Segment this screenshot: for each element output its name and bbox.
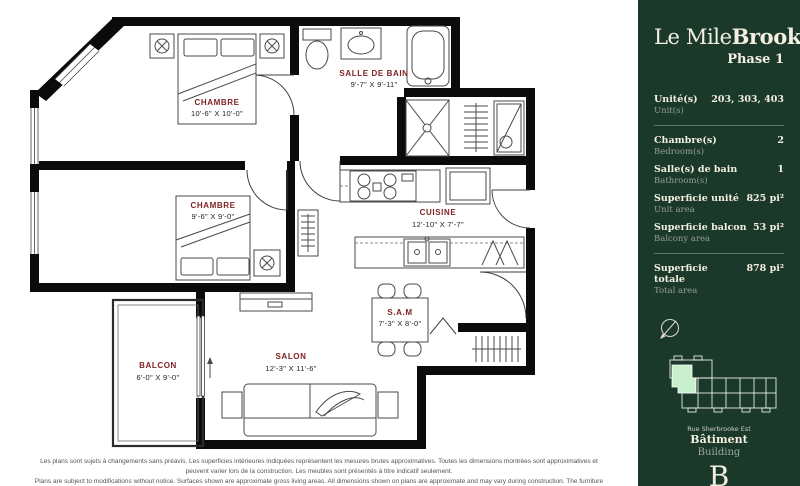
brand: Le MileBrook Phase 1 (654, 24, 784, 67)
bathtub-icon (407, 26, 449, 86)
stat-units-label-en: Unit(s) (654, 106, 698, 116)
building-block: Bâtiment Building B (654, 433, 784, 486)
floor-plan: CHAMBRE 10'-6" X 10'-0" SALLE DE BAIN 9'… (0, 0, 638, 455)
stat-bedrooms: Chambre(s) Bedroom(s) 2 (654, 135, 784, 157)
building-label-fr: Bâtiment (654, 433, 784, 446)
map-caption: Rue Sherbrooke Est (654, 425, 784, 433)
door-bedroom-2 (247, 170, 287, 210)
stove-icon (350, 171, 416, 201)
divider (654, 253, 784, 254)
sofa-icon (222, 384, 398, 436)
stat-bedrooms-value: 2 (771, 135, 784, 146)
stat-unit-area-label-fr: Superficie unité (654, 193, 739, 204)
tv-console-icon (240, 293, 312, 311)
stat-total-area-label-fr: Superficie totale (654, 263, 740, 285)
room-dims-balcon: 6'-0" X 9'-0" (137, 373, 180, 382)
brand-name: Le MileBrook (654, 24, 784, 49)
room-dims-chambre-1: 10'-6" X 10'-0" (191, 109, 243, 118)
room-dims-cuisine: 12'-10" X 7'-7" (412, 220, 464, 229)
diagonal-window (55, 44, 99, 86)
stat-bedrooms-label-fr: Chambre(s) (654, 135, 717, 146)
room-label-salle-de-bain: SALLE DE BAIN (339, 69, 408, 78)
bifold-closet-door (430, 318, 456, 334)
room-dims-sam: 7'-3" X 8'-0" (379, 319, 422, 328)
room-dims-salle-de-bain: 9'-7" X 9'-11" (351, 80, 398, 89)
disclaimer-fr: Les plans sont sujets à changements sans… (28, 457, 610, 477)
door-vestibule (480, 272, 526, 318)
stat-balcony-area-label-en: Balcony area (654, 234, 747, 244)
divider (654, 125, 784, 126)
stat-units: Unité(s) Unit(s) 203, 303, 403 (654, 94, 784, 116)
stat-bedrooms-label-en: Bedroom(s) (654, 147, 717, 157)
stat-bathrooms: Salle(s) de bain Bathroom(s) 1 (654, 164, 784, 186)
brand-name-bold: Brook (732, 24, 800, 49)
entry-closet-icon (472, 336, 521, 362)
room-label-chambre-2: CHAMBRE (190, 201, 235, 210)
kitchen-sink-icon (404, 237, 450, 266)
sidebar: Le MileBrook Phase 1 Unité(s) Unit(s) 20… (638, 0, 800, 486)
disclaimer-en: Plans are subject to modifications witho… (28, 477, 610, 486)
stat-total-area-label-en: Total area (654, 286, 740, 296)
sliding-door-icon (197, 316, 213, 396)
room-dims-chambre-2: 9'-6" X 9'-0" (192, 212, 235, 221)
room-dims-salon: 12'-3" X 11'-6" (265, 364, 316, 373)
stat-total-area: Superficie totale Total area 878 pi² (654, 263, 784, 296)
building-minimap (654, 353, 784, 421)
door-bedroom-1 (254, 75, 294, 115)
stat-units-label-fr: Unité(s) (654, 94, 698, 105)
linen-closet-icon (464, 103, 488, 152)
window-bedroom-2 (30, 192, 39, 254)
window-bedroom-1 (30, 108, 39, 164)
stat-total-area-value: 878 pi² (740, 263, 784, 274)
stat-unit-area-label-en: Unit area (654, 205, 739, 215)
room-label-salon: SALON (276, 352, 307, 361)
disclaimer: Les plans sont sujets à changements sans… (0, 457, 638, 486)
toilet-icon (303, 29, 331, 69)
page: CHAMBRE 10'-6" X 10'-0" SALLE DE BAIN 9'… (0, 0, 800, 486)
brand-phase: Phase 1 (654, 52, 784, 67)
washer-dryer-icon (494, 101, 524, 155)
stat-balcony-area-label-fr: Superficie balcon (654, 222, 747, 233)
building-label-en: Building (654, 447, 784, 458)
stat-unit-area: Superficie unité Unit area 825 pi² (654, 193, 784, 215)
stat-unit-area-value: 825 pi² (740, 193, 784, 204)
stat-bathrooms-label-en: Bathroom(s) (654, 176, 737, 186)
stat-balcony-area: Superficie balcon Balcony area 53 pi² (654, 222, 784, 244)
fridge-icon (446, 168, 490, 204)
building-value: B (654, 460, 784, 486)
shower-icon (406, 100, 449, 156)
stat-bathrooms-value: 1 (771, 164, 784, 175)
room-label-balcon: BALCON (139, 361, 177, 370)
stat-balcony-area-value: 53 pi² (747, 222, 784, 233)
room-label-chambre-1: CHAMBRE (194, 98, 239, 107)
stat-units-value: 203, 303, 403 (705, 94, 784, 105)
door-bathroom (300, 161, 340, 201)
hall-closet-icon (298, 210, 318, 256)
compass-icon (656, 317, 784, 347)
highlighted-unit (672, 365, 696, 393)
stat-bathrooms-label-fr: Salle(s) de bain (654, 164, 737, 175)
bath-sink-icon (341, 28, 381, 59)
room-label-sam: S.A.M (387, 308, 412, 317)
door-entry (492, 190, 530, 228)
room-label-cuisine: CUISINE (420, 208, 457, 217)
floor-plan-area: CHAMBRE 10'-6" X 10'-0" SALLE DE BAIN 9'… (0, 0, 638, 455)
stats: Unité(s) Unit(s) 203, 303, 403 Chambre(s… (654, 87, 784, 303)
brand-name-light: Le Mile (654, 25, 732, 49)
